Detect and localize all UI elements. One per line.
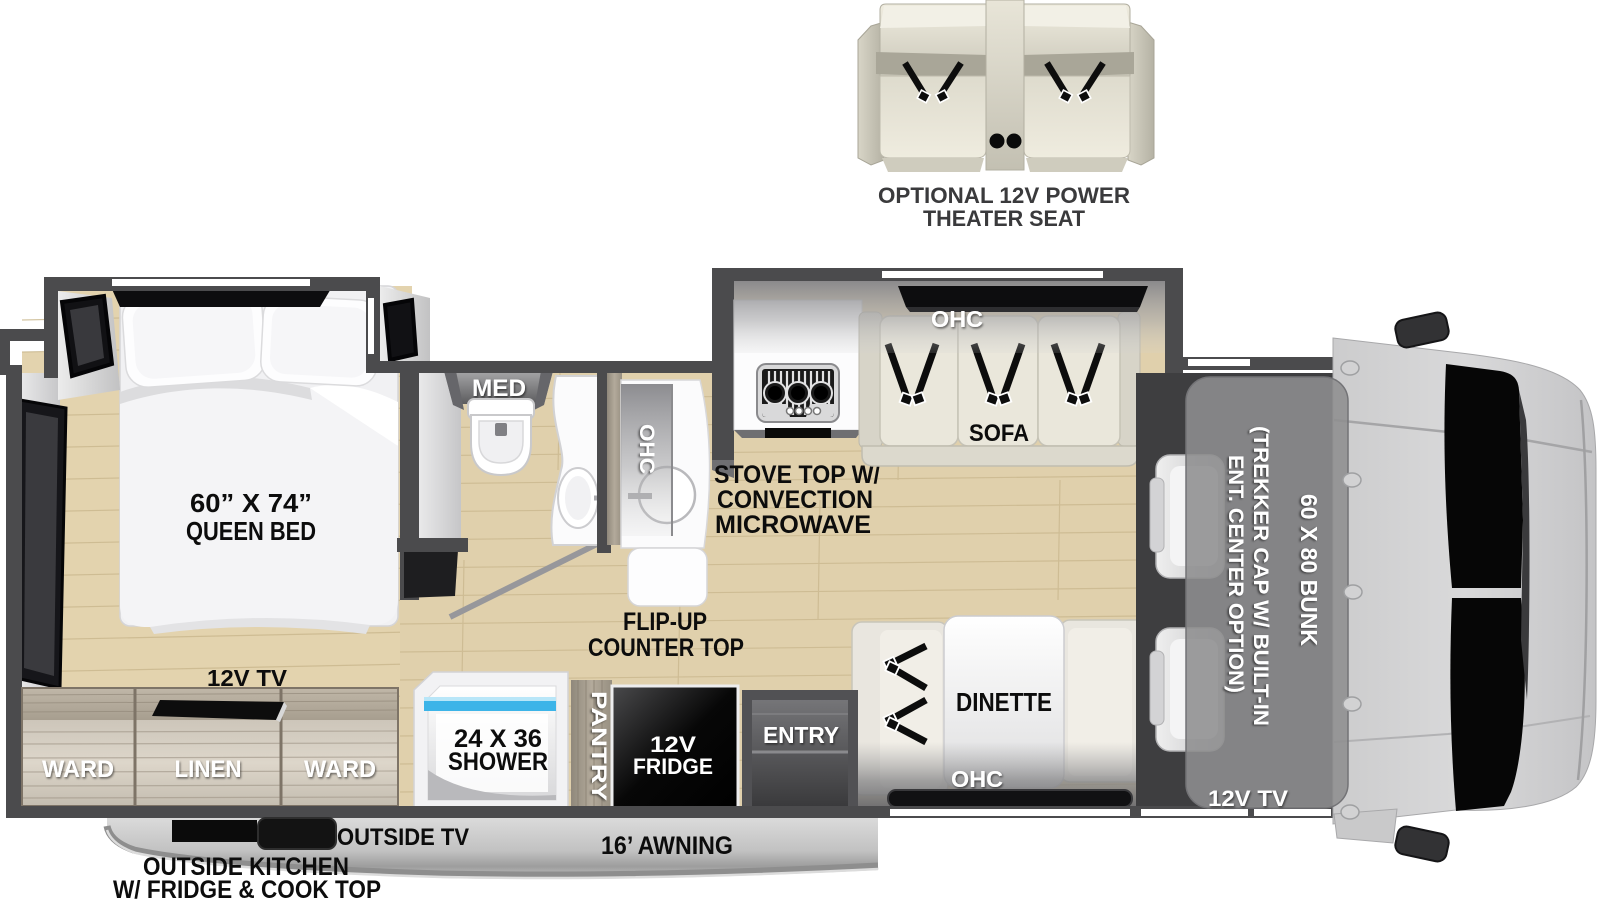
svg-text:16’ AWNING: 16’ AWNING: [601, 832, 733, 860]
svg-text:OUTSIDE TV: OUTSIDE TV: [337, 824, 469, 851]
svg-text:OPTIONAL 12V POWER: OPTIONAL 12V POWER: [878, 183, 1130, 208]
svg-text:WARD: WARD: [42, 756, 114, 783]
svg-text:LINEN: LINEN: [175, 756, 242, 783]
svg-text:CONVECTION: CONVECTION: [717, 486, 873, 514]
svg-text:12V TV: 12V TV: [207, 665, 288, 691]
svg-text:QUEEN BED: QUEEN BED: [186, 516, 316, 546]
svg-text:W/ FRIDGE & COOK TOP: W/ FRIDGE & COOK TOP: [113, 876, 381, 904]
svg-text:ENT. CENTER OPTION): ENT. CENTER OPTION): [1224, 455, 1247, 693]
svg-text:SHOWER: SHOWER: [448, 748, 548, 776]
svg-text:FLIP-UP: FLIP-UP: [623, 608, 707, 636]
svg-text:MICROWAVE: MICROWAVE: [715, 511, 871, 539]
svg-text:PANTRY: PANTRY: [587, 691, 610, 801]
svg-text:60” X 74”: 60” X 74”: [190, 488, 312, 518]
svg-text:OHC: OHC: [931, 306, 983, 332]
svg-text:OHC: OHC: [635, 424, 658, 474]
svg-text:60 X 80 BUNK: 60 X 80 BUNK: [1296, 494, 1322, 646]
svg-text:STOVE TOP W/: STOVE TOP W/: [714, 461, 880, 489]
svg-text:DINETTE: DINETTE: [956, 687, 1052, 717]
svg-text:ENTRY: ENTRY: [763, 722, 839, 748]
svg-text:MED: MED: [472, 375, 526, 402]
svg-text:(TREKKER CAP W/ BUILT-IN: (TREKKER CAP W/ BUILT-IN: [1249, 426, 1272, 726]
svg-text:OHC: OHC: [951, 766, 1003, 792]
svg-text:FRIDGE: FRIDGE: [633, 754, 713, 779]
svg-text:12V TV: 12V TV: [1208, 786, 1288, 811]
svg-text:SOFA: SOFA: [969, 420, 1029, 447]
svg-text:WARD: WARD: [304, 756, 376, 783]
svg-text:THEATER SEAT: THEATER SEAT: [923, 206, 1086, 231]
svg-text:COUNTER TOP: COUNTER TOP: [588, 634, 744, 662]
